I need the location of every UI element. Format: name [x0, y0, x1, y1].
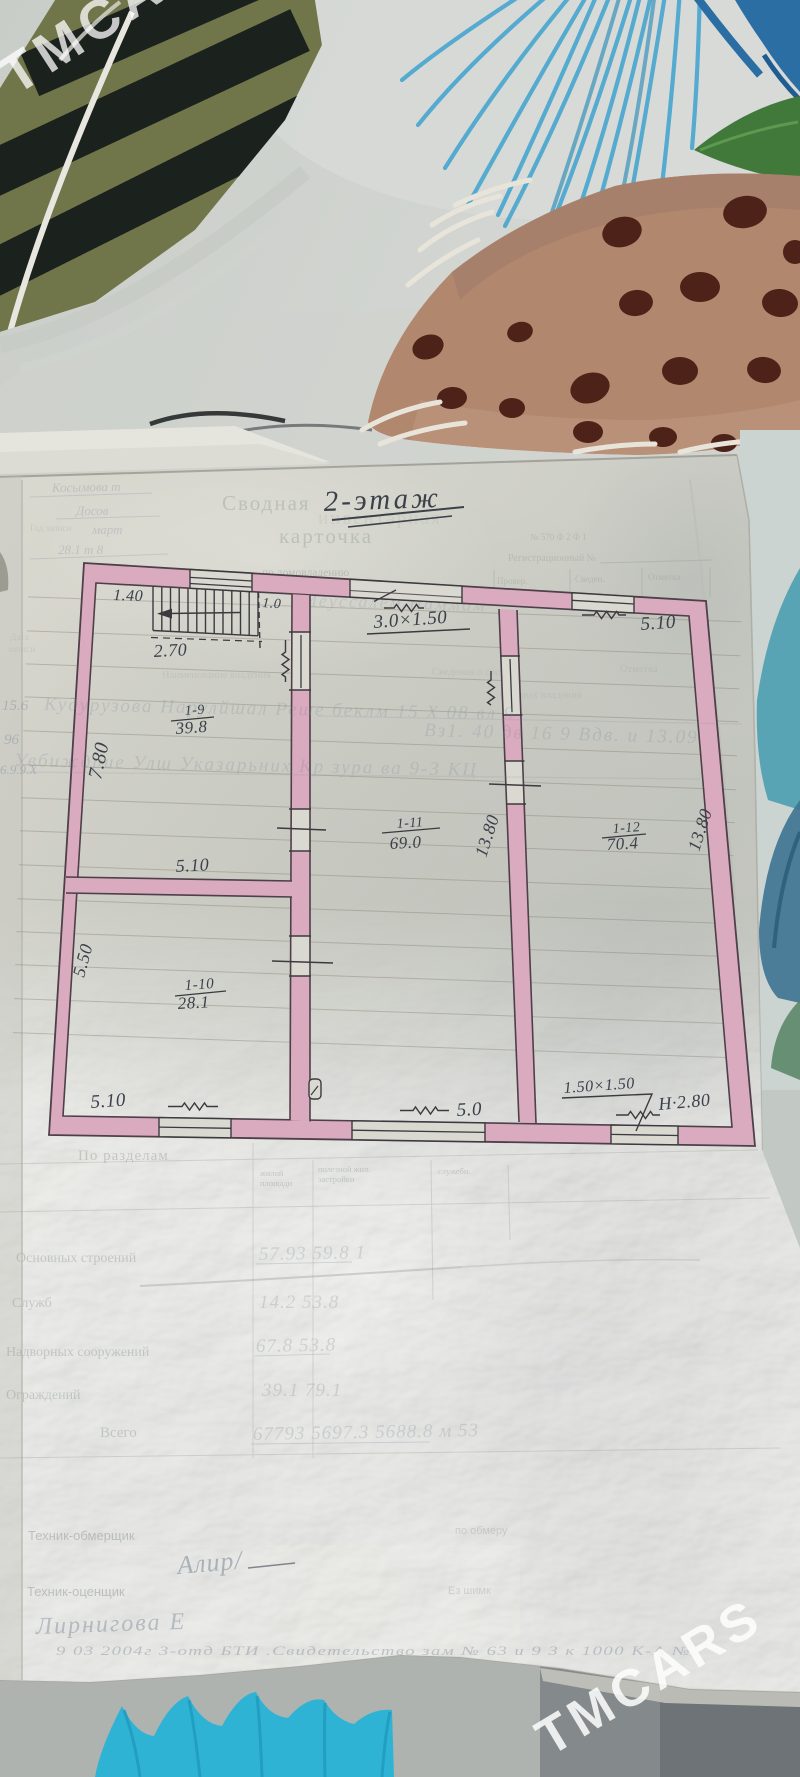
svg-text:Ограждений: Ограждений: [6, 1388, 81, 1403]
svg-text:Наименование владения: Наименование владения: [162, 670, 271, 681]
svg-text:Отметка: Отметка: [648, 572, 680, 582]
svg-text:служебн.: служебн.: [438, 1166, 471, 1176]
svg-text:1-10: 1-10: [184, 976, 215, 994]
svg-text:Провер.: Провер.: [497, 576, 527, 586]
svg-text:5.10: 5.10: [90, 1090, 127, 1113]
svg-text:Лирнигова Е: Лирнигова Е: [34, 1609, 186, 1640]
svg-text:Надворных сооружений: Надворных сооружений: [6, 1345, 150, 1360]
svg-text:площади: площади: [260, 1178, 293, 1188]
svg-text:1.0: 1.0: [262, 596, 282, 612]
svg-text:39.8: 39.8: [174, 717, 208, 738]
svg-text:1.40: 1.40: [113, 587, 144, 605]
svg-text:6.9.9.Х: 6.9.9.Х: [0, 762, 38, 777]
svg-text:полезной жил.: полезной жил.: [318, 1164, 370, 1174]
svg-text:39.1 79.1: 39.1 79.1: [261, 1380, 342, 1401]
svg-text:застройки: застройки: [318, 1174, 355, 1184]
svg-text:Досов: Досов: [74, 503, 109, 518]
svg-text:март: март: [91, 522, 123, 537]
svg-text:2-этаж: 2-этаж: [323, 482, 441, 518]
svg-text:жилой: жилой: [259, 1168, 284, 1178]
svg-text:Дата: Дата: [10, 633, 30, 643]
svg-text:Сведен.: Сведен.: [575, 574, 605, 584]
svg-text:По разделам: По разделам: [78, 1148, 169, 1164]
svg-text:карточка: карточка: [279, 524, 373, 548]
svg-text:Основных строений: Основных строений: [16, 1251, 137, 1266]
svg-text:69.0: 69.0: [389, 832, 422, 853]
svg-text:Техник-оценщик: Техник-оценщик: [27, 1584, 125, 1599]
svg-text:по обмеру: по обмеру: [455, 1525, 508, 1537]
svg-text:28.1: 28.1: [177, 992, 210, 1013]
svg-text:Регистрационный №: Регистрационный №: [508, 553, 596, 564]
svg-text:70.4: 70.4: [606, 833, 639, 854]
svg-text:5.0: 5.0: [456, 1099, 482, 1121]
svg-text:Всего: Всего: [100, 1425, 137, 1441]
svg-text:28.1 т 8: 28.1 т 8: [58, 542, 104, 557]
svg-text:Техник-обмерщик: Техник-обмерщик: [28, 1528, 135, 1543]
svg-text:№ 570 Ф 2 Ф 1: № 570 Ф 2 Ф 1: [530, 532, 587, 542]
svg-text:67.8 53.8: 67.8 53.8: [256, 1335, 337, 1357]
svg-text:14.2 53.8: 14.2 53.8: [259, 1292, 339, 1313]
svg-text:5.10: 5.10: [640, 612, 677, 635]
svg-text:Год записи: Год записи: [30, 523, 72, 533]
svg-text:5.10: 5.10: [175, 854, 210, 876]
svg-text:67793 5697.3 5688.8 м 53: 67793 5697.3 5688.8 м 53: [253, 1420, 479, 1445]
svg-text:Сводная: Сводная: [222, 491, 311, 515]
svg-text:2.70: 2.70: [153, 639, 188, 661]
svg-text:Отметка: Отметка: [620, 664, 658, 675]
svg-text:9 03 2004г 3-отд БТИ .Свид: 9 03 2004г 3-отд БТИ .Свидетельство зам …: [56, 1644, 691, 1658]
svg-text:Косымова т: Косымова т: [51, 479, 121, 495]
svg-text:Служб: Служб: [12, 1296, 52, 1311]
svg-text:Ез шимк: Ез шимк: [448, 1585, 491, 1597]
svg-text:15.6: 15.6: [2, 698, 29, 714]
svg-text:Алир/: Алир/: [174, 1545, 245, 1580]
svg-text:96: 96: [4, 732, 20, 748]
svg-text:записи: записи: [8, 645, 35, 655]
